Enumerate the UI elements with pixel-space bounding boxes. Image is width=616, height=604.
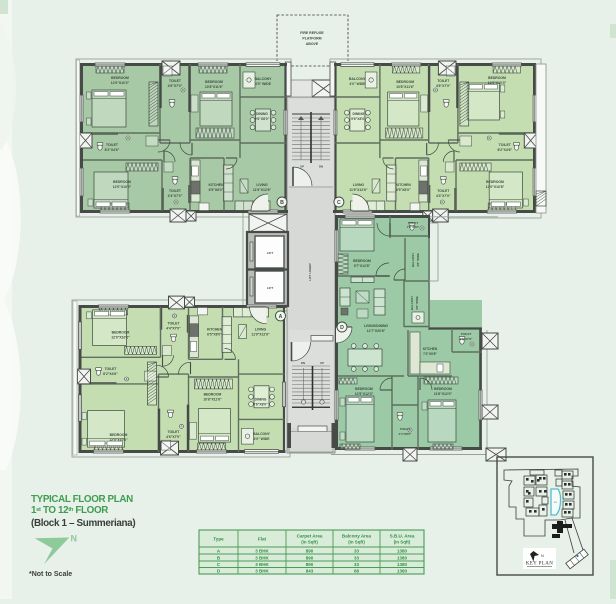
svg-text:3 BHK: 3 BHK: [255, 555, 269, 560]
svg-text:B: B: [280, 200, 284, 206]
svg-text:PLATFORM: PLATFORM: [302, 37, 321, 41]
svg-text:68: 68: [354, 569, 360, 574]
svg-text:(in Sqft): (in Sqft): [301, 540, 318, 545]
svg-text:Carpet Area: Carpet Area: [297, 534, 323, 539]
svg-text:4'0" WIDE: 4'0" WIDE: [349, 82, 366, 86]
svg-text:4'4"X7'0": 4'4"X7'0": [166, 327, 181, 331]
svg-text:LIVING: LIVING: [353, 183, 365, 187]
svg-text:10'8"X11'6": 10'8"X11'6": [205, 85, 224, 89]
svg-text:3 BHK: 3 BHK: [255, 548, 269, 553]
svg-text:4'6"X7'0": 4'6"X7'0": [166, 435, 181, 439]
svg-text:D: D: [340, 325, 344, 331]
svg-text:12'0"X10'8": 12'0"X10'8": [486, 185, 505, 189]
svg-text:LIFT LOBBY: LIFT LOBBY: [308, 263, 312, 281]
svg-text:BEDROOM: BEDROOM: [110, 433, 128, 437]
svg-text:6'5"X8'0": 6'5"X8'0": [209, 188, 224, 192]
svg-text:9'6"X8'0": 9'6"X8'0": [253, 403, 268, 407]
svg-text:TOILET: TOILET: [437, 79, 450, 83]
svg-text:TOILET: TOILET: [105, 367, 118, 371]
svg-text:8'2"X4'6": 8'2"X4'6": [497, 148, 512, 152]
svg-text:4'0" WIDE: 4'0" WIDE: [254, 437, 271, 441]
svg-text:1380: 1380: [397, 548, 408, 553]
svg-text:12'0"X10'0": 12'0"X10'0": [109, 438, 128, 442]
svg-text:TOILET: TOILET: [168, 322, 181, 326]
svg-text:BEDROOM: BEDROOM: [355, 387, 373, 391]
svg-text:1380: 1380: [397, 562, 408, 567]
svg-text:*Not to Scale: *Not to Scale: [29, 571, 72, 578]
svg-text:7'8"X4'6": 7'8"X4'6": [407, 225, 420, 229]
svg-text:BALCONY: BALCONY: [253, 432, 271, 436]
svg-text:4'6"X7'0": 4'6"X7'0": [168, 84, 183, 88]
svg-text:N: N: [71, 534, 78, 544]
svg-text:BALCONY: BALCONY: [411, 253, 415, 267]
svg-text:8'2"X4'6": 8'2"X4'6": [103, 372, 118, 376]
svg-text:TOILET: TOILET: [461, 332, 472, 336]
svg-text:KITCHEN: KITCHEN: [207, 328, 223, 332]
svg-text:7'2"X9'8": 7'2"X9'8": [423, 352, 437, 356]
svg-text:11'8"X12'0": 11'8"X12'0": [434, 392, 453, 396]
svg-text:(in Sqft): (in Sqft): [394, 540, 411, 545]
svg-text:10'5"X12'0": 10'5"X12'0": [355, 392, 374, 396]
svg-text:FIRE REFUGE: FIRE REFUGE: [300, 31, 324, 35]
svg-text:11'9"X12'6": 11'9"X12'6": [251, 333, 270, 337]
svg-text:8'2"X4'6": 8'2"X4'6": [105, 148, 120, 152]
svg-text:N: N: [541, 554, 544, 558]
svg-text:6'5"X8'0": 6'5"X8'0": [207, 333, 222, 337]
svg-text:4'0" WIDE: 4'0" WIDE: [255, 82, 272, 86]
svg-text:BEDROOM: BEDROOM: [353, 259, 371, 263]
svg-text:DN: DN: [301, 361, 305, 365]
svg-text:12'0"X10'2": 12'0"X10'2": [111, 81, 130, 85]
svg-text:9'7"X12'8": 9'7"X12'8": [354, 264, 371, 268]
svg-text:9'6"X8'0": 9'6"X8'0": [255, 117, 270, 121]
svg-text:4'6"X7'0": 4'6"X7'0": [436, 84, 451, 88]
svg-text:LIFT: LIFT: [267, 251, 273, 255]
svg-text:UP: UP: [300, 165, 304, 169]
svg-text:LIVING/DINING: LIVING/DINING: [364, 324, 388, 328]
svg-text:890: 890: [306, 562, 314, 567]
svg-text:BEDROOM: BEDROOM: [205, 80, 223, 84]
svg-text:DN: DN: [319, 165, 323, 169]
svg-text:KEY PLAN: KEY PLAN: [526, 562, 554, 567]
svg-text:BEDROOM: BEDROOM: [488, 76, 506, 80]
svg-text:TOILET: TOILET: [169, 189, 182, 193]
svg-text:TYPICAL FLOOR PLAN: TYPICAL FLOOR PLAN: [31, 494, 133, 505]
svg-text:843: 843: [306, 569, 314, 574]
svg-text:BALCONY: BALCONY: [410, 296, 414, 310]
svg-text:DINING: DINING: [256, 112, 268, 116]
svg-text:TOILET: TOILET: [499, 143, 512, 147]
svg-text:LIVING: LIVING: [255, 328, 267, 332]
svg-text:A: A: [279, 314, 283, 320]
svg-text:4'6" WIDE: 4'6" WIDE: [416, 253, 420, 267]
svg-text:4'4"X8'5": 4'4"X8'5": [399, 432, 413, 436]
svg-text:KITCHEN: KITCHEN: [423, 347, 438, 351]
svg-text:11'9"X12'6": 11'9"X12'6": [253, 188, 272, 192]
svg-text:LIVING: LIVING: [256, 183, 268, 187]
svg-text:ABOVE: ABOVE: [306, 42, 319, 46]
svg-text:BEDROOM: BEDROOM: [111, 76, 129, 80]
svg-text:4'6"X7'0": 4'6"X7'0": [460, 337, 474, 341]
svg-text:TOILET: TOILET: [400, 427, 411, 431]
svg-text:10'8"X11'6": 10'8"X11'6": [396, 85, 415, 89]
svg-text:12'0"X10'2": 12'0"X10'2": [111, 336, 130, 340]
svg-text:BEDROOM: BEDROOM: [434, 387, 452, 391]
svg-text:3 BHK: 3 BHK: [255, 562, 269, 567]
svg-text:890: 890: [306, 548, 314, 553]
svg-text:TOILET: TOILET: [437, 189, 450, 193]
svg-text:12'7"X20'8": 12'7"X20'8": [367, 329, 386, 333]
svg-text:3 BHK: 3 BHK: [255, 569, 269, 574]
svg-text:DINING: DINING: [352, 112, 364, 116]
svg-text:DINING: DINING: [255, 398, 267, 402]
svg-text:(in Sqft): (in Sqft): [348, 540, 365, 545]
svg-text:4'4"X7'0": 4'4"X7'0": [436, 194, 451, 198]
svg-text:10'8"X11'6": 10'8"X11'6": [203, 398, 222, 402]
svg-text:9'6"X8'0": 9'6"X8'0": [351, 117, 366, 121]
svg-text:Flat: Flat: [258, 537, 267, 542]
svg-text:LIFT: LIFT: [267, 286, 273, 290]
svg-text:1380: 1380: [397, 555, 408, 560]
svg-text:UP: UP: [320, 361, 324, 365]
svg-text:6'5"X8'0": 6'5"X8'0": [396, 188, 411, 192]
svg-text:TOILET: TOILET: [169, 79, 182, 83]
svg-text:C: C: [337, 200, 341, 206]
svg-text:11'9"X12'6": 11'9"X12'6": [349, 188, 368, 192]
svg-text:BEDROOM: BEDROOM: [113, 180, 131, 184]
svg-text:33: 33: [354, 555, 360, 560]
svg-text:4'6" WIDE: 4'6" WIDE: [415, 296, 419, 310]
svg-text:4'4"X7'0": 4'4"X7'0": [168, 194, 183, 198]
svg-text:890: 890: [306, 555, 314, 560]
svg-text:BEDROOM: BEDROOM: [486, 180, 504, 184]
svg-text:12'0"X10'3": 12'0"X10'3": [488, 81, 507, 85]
svg-text:KITCHEN: KITCHEN: [396, 183, 412, 187]
svg-text:BALCONY: BALCONY: [255, 77, 273, 81]
svg-text:BEDROOM: BEDROOM: [112, 331, 130, 335]
svg-text:(Block 1 – Summeriana): (Block 1 – Summeriana): [31, 518, 135, 529]
svg-text:33: 33: [354, 548, 360, 553]
svg-text:BALCONY: BALCONY: [349, 77, 367, 81]
svg-text:TOILET: TOILET: [168, 430, 181, 434]
svg-text:Type: Type: [213, 537, 224, 542]
svg-text:TOILET: TOILET: [106, 143, 119, 147]
svg-text:BEDROOM: BEDROOM: [396, 80, 414, 84]
svg-text:12'0"X10'0": 12'0"X10'0": [113, 185, 132, 189]
svg-text:S.B.U. Area: S.B.U. Area: [390, 534, 415, 539]
svg-text:1360: 1360: [397, 569, 408, 574]
svg-text:KITCHEN: KITCHEN: [208, 183, 224, 187]
svg-text:BEDROOM: BEDROOM: [204, 393, 222, 397]
svg-text:33: 33: [354, 562, 360, 567]
svg-text:Balcony Area: Balcony Area: [342, 534, 372, 539]
